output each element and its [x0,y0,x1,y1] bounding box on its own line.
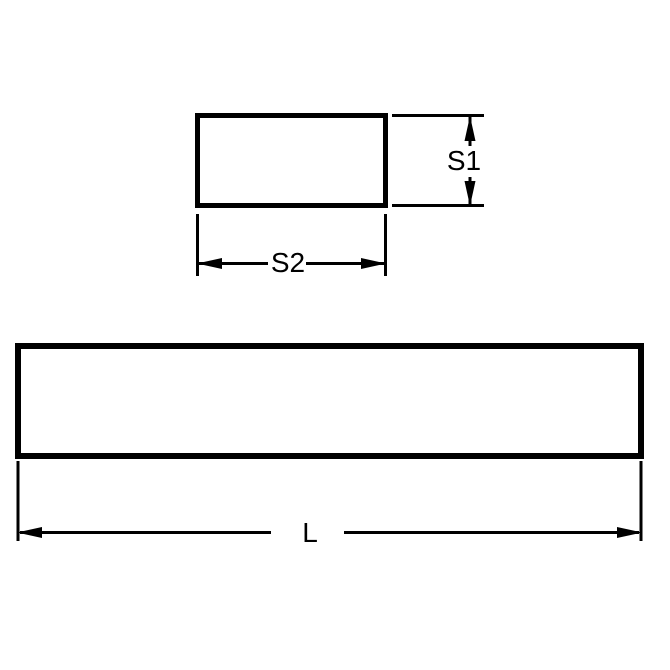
cross-section-rectangle [198,116,386,206]
bar-rectangle [18,346,641,456]
keystock-dimension-diagram: S1 S2 L [0,0,670,670]
s2-arrow-left-icon [197,258,222,269]
l-label: L [302,517,318,548]
s2-label: S2 [271,247,305,278]
dimension-s2: S2 [197,214,386,278]
s2-arrow-right-icon [361,258,386,269]
l-arrow-left-icon [17,527,42,538]
dimension-s1: S1 [392,116,484,207]
dimension-l: L [17,461,642,548]
s1-arrow-down-icon [465,181,476,206]
l-arrow-right-icon [617,527,642,538]
s1-label: S1 [447,145,481,176]
technical-drawing-canvas: S1 S2 L [0,0,670,670]
s1-arrow-up-icon [465,116,476,141]
